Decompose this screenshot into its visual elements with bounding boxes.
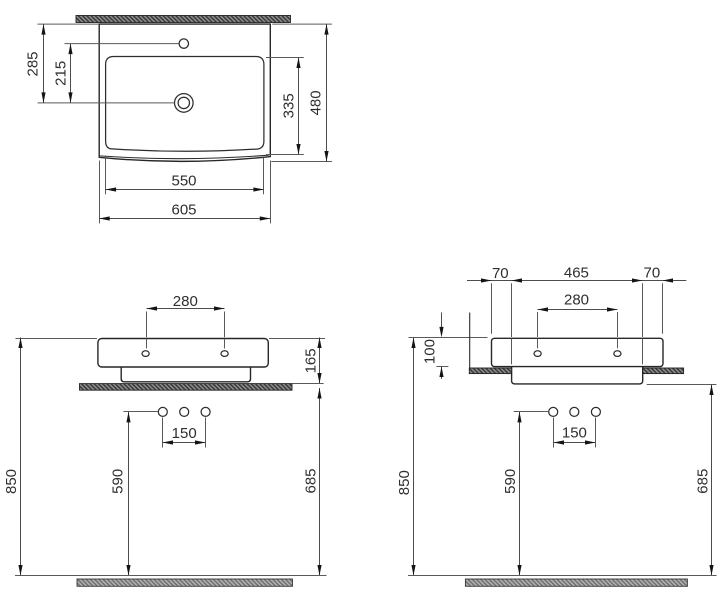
svg-text:165: 165 bbox=[302, 348, 319, 373]
svg-text:850: 850 bbox=[3, 469, 20, 494]
svg-text:285: 285 bbox=[24, 51, 41, 76]
svg-text:215: 215 bbox=[52, 61, 69, 86]
svg-text:850: 850 bbox=[396, 470, 413, 495]
svg-text:70: 70 bbox=[644, 264, 661, 281]
svg-text:465: 465 bbox=[564, 265, 589, 282]
svg-text:150: 150 bbox=[172, 425, 197, 442]
svg-text:590: 590 bbox=[110, 469, 127, 494]
svg-text:550: 550 bbox=[171, 172, 196, 189]
svg-text:685: 685 bbox=[303, 468, 320, 493]
svg-text:605: 605 bbox=[171, 201, 196, 218]
svg-text:150: 150 bbox=[562, 425, 587, 442]
svg-text:480: 480 bbox=[307, 90, 324, 115]
svg-text:590: 590 bbox=[502, 469, 519, 494]
svg-text:335: 335 bbox=[281, 93, 298, 118]
svg-text:70: 70 bbox=[492, 265, 509, 282]
svg-text:685: 685 bbox=[694, 469, 711, 494]
svg-text:280: 280 bbox=[173, 293, 198, 310]
svg-text:280: 280 bbox=[564, 292, 589, 309]
svg-text:100: 100 bbox=[422, 339, 439, 364]
